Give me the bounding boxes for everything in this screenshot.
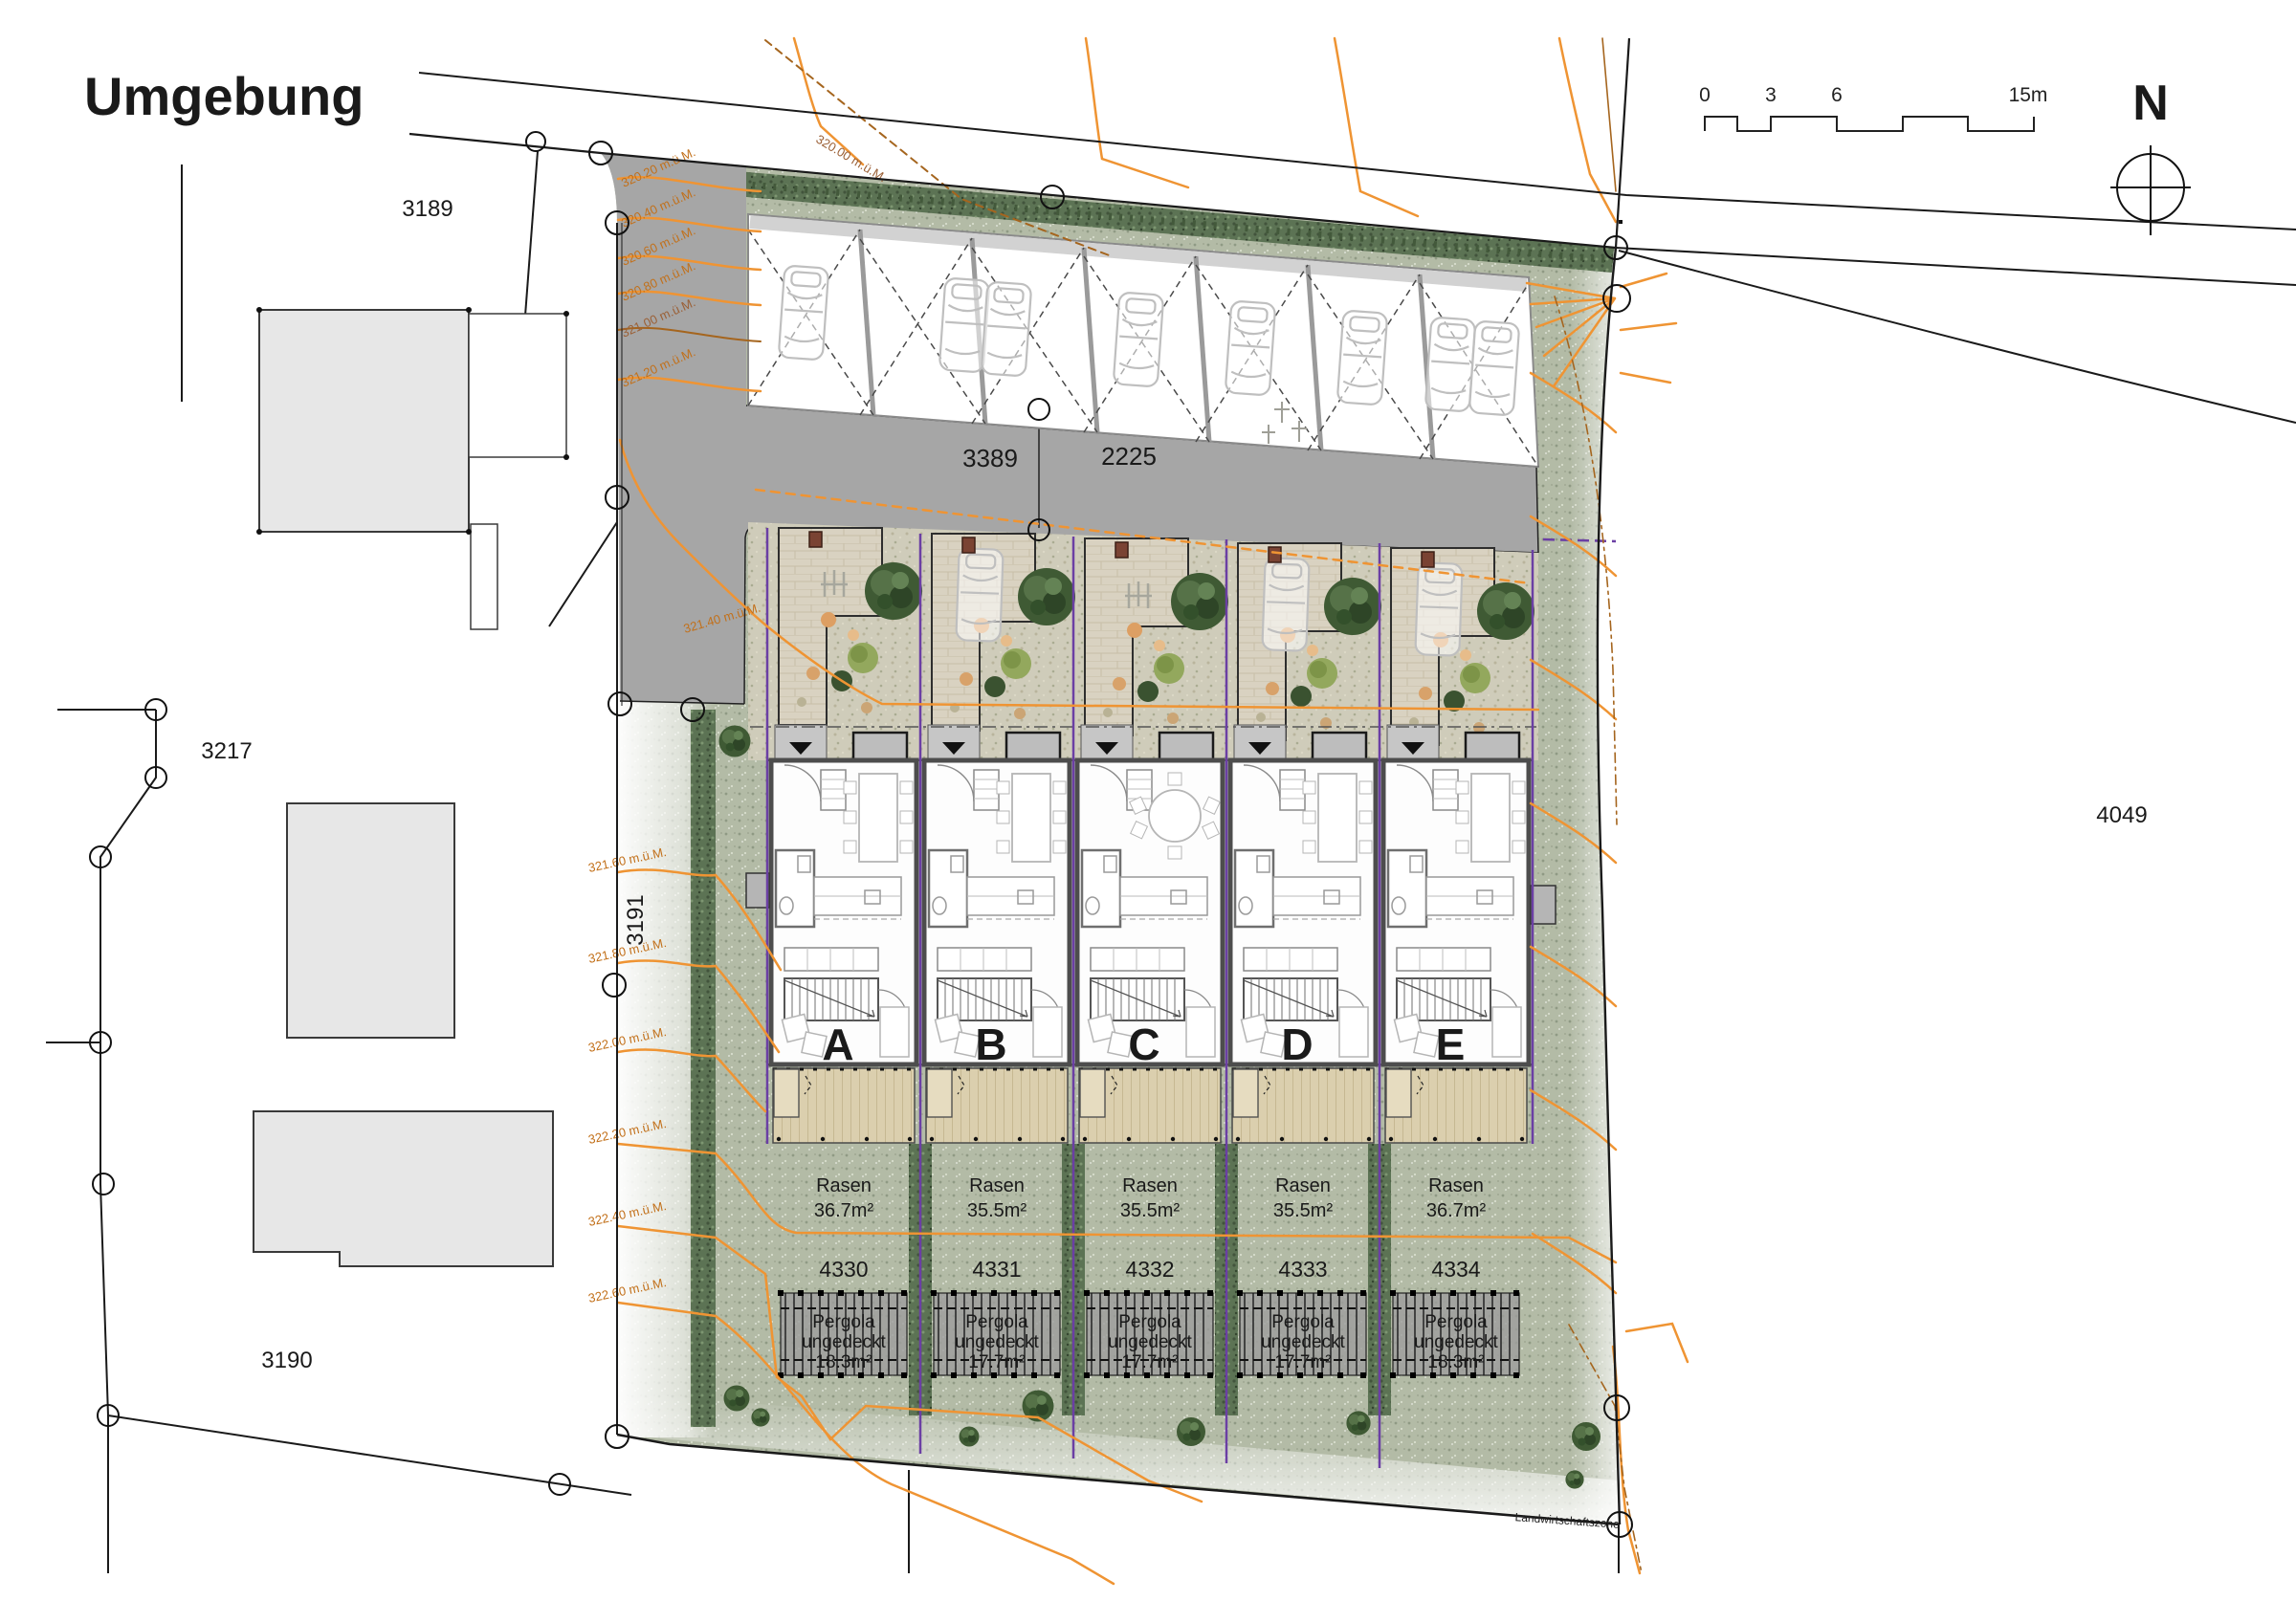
pergola-word: Pergola — [812, 1312, 875, 1332]
dining-B — [997, 774, 1066, 862]
scale-tick-6: 6 — [1831, 84, 1843, 106]
parcel-label-3189: 3189 — [402, 196, 453, 222]
building-3189 — [259, 310, 469, 532]
page-title: Umgebung — [84, 66, 364, 126]
pergola-area: 18.3m² — [1427, 1352, 1484, 1372]
pergola-word2: ungedeckt — [955, 1332, 1039, 1352]
house-letter-A: A — [822, 1020, 853, 1069]
pergola-word2: ungedeckt — [1414, 1332, 1498, 1352]
lot-number: 4331 — [972, 1257, 1021, 1282]
parcel-label-3191: 3191 — [623, 894, 649, 945]
parcel-label-4049: 4049 — [2096, 802, 2147, 828]
pergola-word: Pergola — [1271, 1312, 1335, 1332]
parcel-line — [525, 151, 538, 316]
yard-car-E — [1415, 562, 1462, 656]
rasen-word: Rasen — [1428, 1175, 1484, 1196]
yard-car-B — [956, 548, 1003, 642]
building-3190 — [254, 1111, 553, 1266]
rasen-word: Rasen — [1275, 1175, 1331, 1196]
site-plan-drawing: 320.00 m.ü.M. 320.20 m.ü.M. 320.40 m.ü.M… — [0, 0, 2296, 1623]
west-hedge — [691, 710, 716, 1427]
rasen-area: 36.7m² — [1426, 1200, 1487, 1221]
rasen-word: Rasen — [969, 1175, 1025, 1196]
scale-bar: 0 3 6 15m — [1699, 84, 2047, 131]
house-E-side-box — [1531, 886, 1556, 924]
lot-number: 4330 — [819, 1257, 868, 1282]
dining-A — [844, 774, 913, 862]
house-letter-B: B — [975, 1020, 1006, 1069]
rasen-word: Rasen — [1122, 1175, 1178, 1196]
pergola-word2: ungedeckt — [802, 1332, 886, 1352]
building-3217 — [287, 803, 454, 1038]
pergola-word2: ungedeckt — [1108, 1332, 1192, 1352]
scale-tick-0: 0 — [1699, 84, 1711, 106]
scale-tick-15m: 15m — [2009, 84, 2048, 106]
pergola-word: Pergola — [1118, 1312, 1181, 1332]
neighbour-buildings — [254, 307, 569, 1266]
lot-number: 4333 — [1278, 1257, 1327, 1282]
road-label-3389: 3389 — [962, 444, 1018, 472]
rasen-area: 35.5m² — [1273, 1200, 1334, 1221]
scale-bar-shape — [1705, 117, 2034, 131]
rasen-area: 35.5m² — [967, 1200, 1027, 1221]
house-A-side-box — [746, 873, 769, 908]
rasen-area: 35.5m² — [1120, 1200, 1181, 1221]
house-letter-D: D — [1281, 1020, 1313, 1069]
pergola-area: 17.7m² — [968, 1352, 1025, 1372]
parcel-line — [549, 522, 617, 626]
pergola-area: 17.7m² — [1121, 1352, 1178, 1372]
north-arrow: N — [2110, 76, 2191, 235]
scale-tick-3: 3 — [1765, 84, 1777, 106]
road-label-2225: 2225 — [1101, 442, 1157, 471]
bike-rack-A — [821, 570, 848, 597]
house-letter-C: C — [1128, 1020, 1159, 1069]
lot-number: 4334 — [1431, 1257, 1480, 1282]
front-yards — [748, 522, 1616, 760]
compass-icon — [2110, 145, 2191, 235]
building-3189-annex — [469, 314, 566, 457]
pergola-word: Pergola — [1424, 1312, 1488, 1332]
dining-D — [1303, 774, 1372, 862]
parcel-label-3190: 3190 — [261, 1348, 312, 1373]
building-3189-garage — [471, 524, 497, 629]
bike-rack-C — [1125, 581, 1152, 608]
rasen-area: 36.7m² — [814, 1200, 874, 1221]
parcel-label-3217: 3217 — [201, 738, 252, 764]
yard-car-D — [1262, 558, 1309, 651]
north-letter: N — [2132, 76, 2169, 131]
pergola-area: 18.3m² — [815, 1352, 872, 1372]
pergola-area: 17.7m² — [1274, 1352, 1331, 1372]
dining-E — [1456, 774, 1525, 862]
lot-number: 4332 — [1125, 1257, 1174, 1282]
rasen-word: Rasen — [816, 1175, 872, 1196]
pergola-word: Pergola — [965, 1312, 1028, 1332]
site-plan-page: 320.00 m.ü.M. 320.20 m.ü.M. 320.40 m.ü.M… — [0, 0, 2296, 1623]
house-letter-E: E — [1436, 1020, 1466, 1069]
pergola-word2: ungedeckt — [1261, 1332, 1345, 1352]
terraces — [773, 1068, 1527, 1143]
